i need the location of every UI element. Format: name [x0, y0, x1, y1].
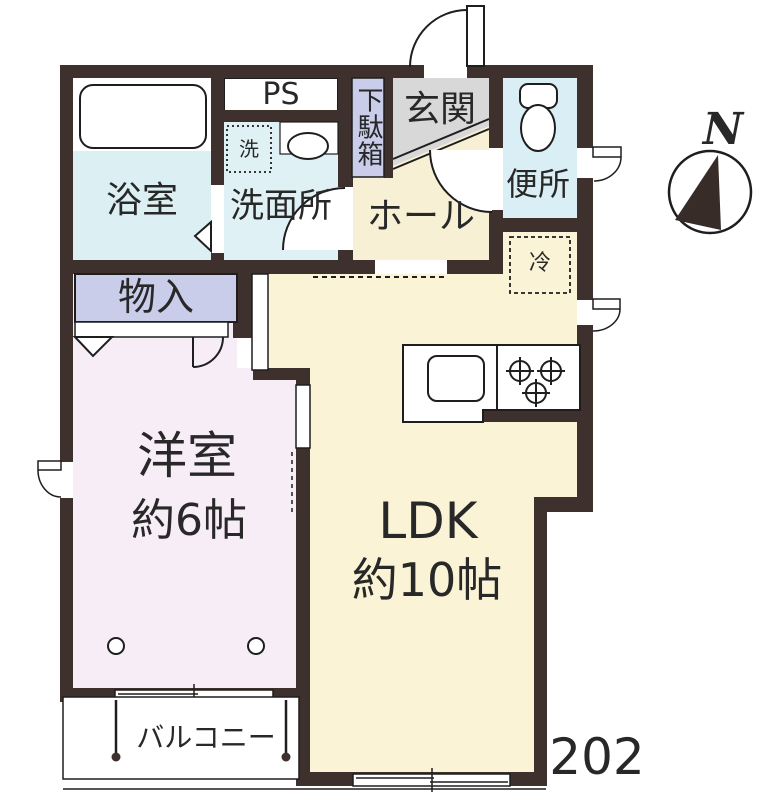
toilet-window-flap: [593, 147, 621, 157]
western-room-label: 洋室: [137, 431, 237, 481]
kitchen-sink: [428, 356, 484, 401]
washroom-label: 洗面所: [230, 189, 332, 223]
ldk-size-label: 約10帖: [352, 557, 503, 603]
refrigerator-space-label: 冷: [529, 253, 551, 275]
western-room-size-label: 約6帖: [131, 499, 247, 543]
unit-number: 202: [549, 732, 644, 782]
bath-label: 浴室: [106, 183, 178, 219]
wall-shoecabinet-entrance: [384, 77, 393, 178]
wall-kitchen-stub: [480, 410, 593, 422]
ldk-window-swing: [593, 309, 620, 331]
ldk-window-opening: [577, 300, 593, 325]
washer-space-label: 洗: [239, 139, 259, 159]
bathtub: [80, 85, 206, 148]
entrance-door-leaf: [467, 6, 484, 66]
bath-door-opening: [211, 185, 224, 253]
western-ldk-slide-opening: [296, 385, 310, 448]
toilet-window-opening: [577, 148, 593, 178]
balcony-rail-dot: [112, 753, 121, 762]
storage-label: 物入: [118, 278, 194, 316]
toilet-bowl: [521, 105, 555, 151]
ldk-window-flap: [593, 299, 620, 309]
wall-right-upper: [577, 65, 593, 512]
floor-plan: 浴室 PS 下駄箱 玄関 便所 洗 洗面所 ホール 冷 物入 洋室 約6帖 LD…: [0, 0, 758, 800]
wall-left: [60, 65, 73, 702]
wall-toilet-bottom: [489, 218, 593, 232]
washbasin: [288, 133, 328, 159]
wall-storage-corner: [233, 322, 253, 338]
closet-door-band: [75, 322, 228, 337]
toilet-window-swing: [594, 157, 621, 181]
balcony-rail-dot: [282, 753, 291, 762]
hall-label: ホール: [367, 199, 475, 235]
entrance-door-swing: [410, 10, 467, 67]
toilet-label: 便所: [506, 168, 570, 200]
entrance-label: 玄関: [404, 92, 476, 128]
shoe-cabinet-label: 下駄箱: [355, 87, 381, 168]
wall-top: [60, 65, 593, 78]
room-marker-circle: [248, 638, 264, 654]
entrance-opening: [424, 65, 467, 78]
wall-right-lower: [534, 497, 547, 786]
hall-ldk-passage: [375, 260, 447, 274]
pocket-strip: [252, 274, 268, 370]
left-window-swing: [38, 470, 61, 497]
ldk-label: LDK: [378, 496, 477, 546]
north-label: N: [703, 108, 743, 152]
pipe-space-label: PS: [262, 80, 299, 110]
balcony-label: バルコニー: [136, 724, 275, 752]
left-window-opening: [60, 462, 73, 498]
compass: [669, 151, 751, 233]
room-marker-circle: [108, 638, 124, 654]
left-window-flap: [38, 461, 61, 470]
